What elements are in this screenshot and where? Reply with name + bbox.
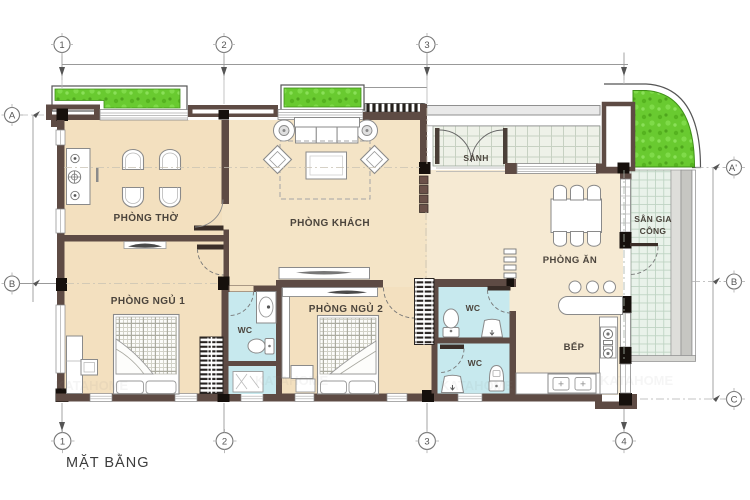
- svg-text:PHÒNG KHÁCH: PHÒNG KHÁCH: [290, 216, 370, 229]
- svg-text:3: 3: [424, 40, 429, 51]
- svg-text:WC: WC: [466, 303, 481, 313]
- svg-text:SẢNH: SẢNH: [463, 152, 488, 163]
- svg-text:3: 3: [424, 437, 429, 448]
- svg-text:WC: WC: [468, 358, 483, 368]
- svg-text:C: C: [731, 395, 738, 406]
- svg-text:2: 2: [222, 437, 227, 448]
- svg-text:KATAHOME: KATAHOME: [255, 373, 329, 388]
- svg-text:B: B: [9, 279, 15, 290]
- svg-text:PHÒNG ĂN: PHÒNG ĂN: [543, 254, 597, 266]
- svg-text:WC: WC: [238, 325, 253, 335]
- svg-text:2: 2: [221, 40, 226, 51]
- svg-text:1: 1: [59, 40, 64, 51]
- svg-text:CÔNG: CÔNG: [640, 225, 667, 236]
- svg-text:SÂN GIA: SÂN GIA: [634, 213, 672, 224]
- svg-text:A: A: [9, 111, 16, 122]
- svg-text:KATAHOME: KATAHOME: [440, 378, 514, 393]
- svg-text:KATAHOME: KATAHOME: [55, 378, 129, 393]
- svg-text:A': A': [729, 163, 737, 174]
- svg-text:4: 4: [621, 437, 626, 448]
- svg-text:PHÒNG NGỦ 2: PHÒNG NGỦ 2: [309, 302, 383, 315]
- svg-text:PHÒNG THỜ: PHÒNG THỜ: [114, 211, 179, 224]
- svg-text:B: B: [731, 277, 737, 288]
- svg-text:PHÒNG NGỦ 1: PHÒNG NGỦ 1: [111, 294, 185, 307]
- svg-text:BẾP: BẾP: [564, 342, 585, 353]
- svg-text:MẶT BẰNG: MẶT BẰNG: [66, 453, 149, 471]
- svg-text:1: 1: [60, 437, 65, 448]
- svg-text:KATAHOME: KATAHOME: [600, 373, 674, 388]
